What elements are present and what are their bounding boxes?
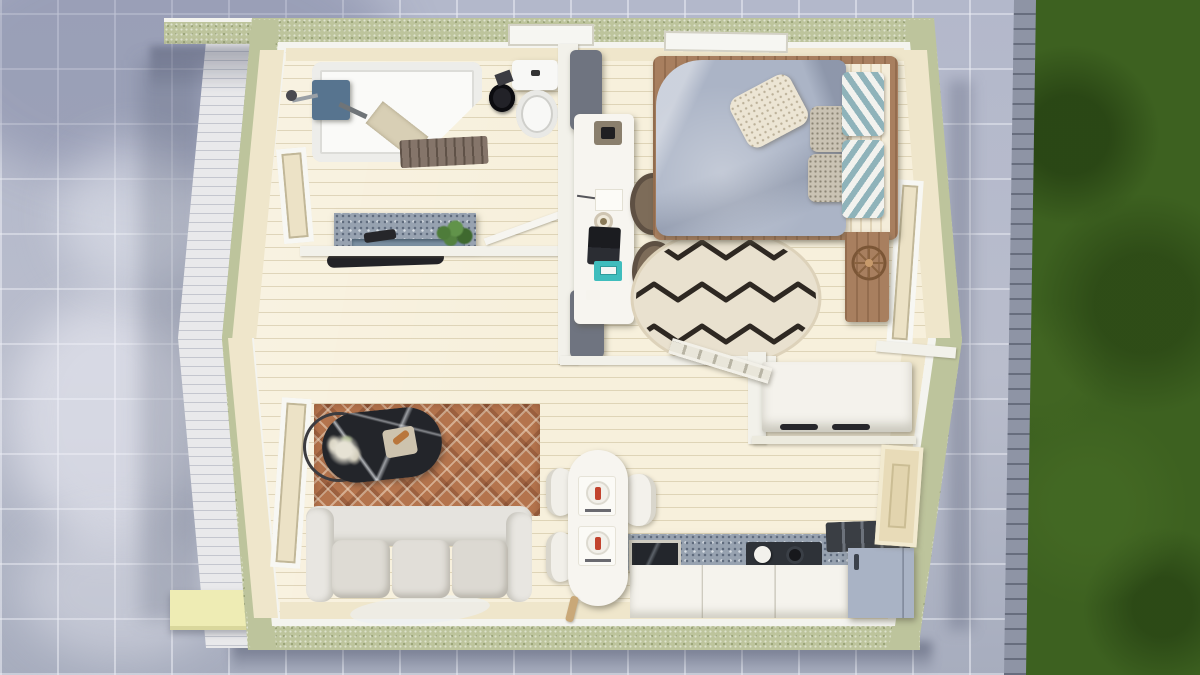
- notebook-label: [600, 266, 617, 275]
- laptop[interactable]: [587, 226, 621, 266]
- bathroom-half-wall: [300, 246, 582, 256]
- grass-lawn: [1014, 0, 1200, 675]
- cutlery-1: [585, 509, 611, 512]
- fridge-handle[interactable]: [854, 554, 859, 570]
- wardrobe-handle-1[interactable]: [780, 424, 818, 430]
- kettle: [754, 546, 771, 563]
- roof-overhang: [164, 18, 256, 44]
- bedroom-top-window: [664, 31, 788, 53]
- bedroom-zigzag-rug: [630, 228, 822, 368]
- rattan-wheel-decor: [850, 244, 888, 282]
- food-2: [595, 537, 601, 550]
- toilet-brush-set: [489, 84, 515, 112]
- wardrobe-handle-2[interactable]: [832, 424, 870, 430]
- sofa-cushion-2: [392, 540, 450, 598]
- place-setting-2: [578, 526, 616, 566]
- duckboard-mat: [399, 136, 488, 169]
- place-setting-1: [578, 476, 616, 516]
- sofa-cushion-3: [452, 540, 508, 598]
- cutlery-2: [585, 559, 611, 562]
- pampas-plant: [318, 424, 370, 476]
- entry-door[interactable]: [875, 445, 924, 548]
- sofa[interactable]: [306, 506, 532, 604]
- bathroom-top-window: [508, 24, 594, 46]
- sofa-arm-left: [306, 508, 334, 602]
- wall-bottom-studs: [248, 624, 920, 650]
- desk-small-item: [586, 290, 600, 300]
- phone: [601, 127, 615, 139]
- toilet-bowl: [516, 90, 558, 138]
- sofa-arm-right: [506, 512, 532, 602]
- sofa-cushion-1: [332, 540, 390, 598]
- desk-lamp-bulb: [600, 218, 607, 225]
- wardrobe-shelf: [752, 436, 916, 444]
- toilet-flush-button: [531, 70, 540, 76]
- vanity-plant: [430, 218, 476, 248]
- pillow-chevron-1: [842, 72, 884, 136]
- wardrobe[interactable]: [762, 362, 912, 432]
- paper-stack: [595, 189, 623, 211]
- shower-panel: [312, 80, 350, 120]
- kitchen-cabinets[interactable]: [630, 565, 848, 618]
- pillow-chevron-2: [842, 140, 884, 218]
- hob-burner: [786, 546, 804, 564]
- food-1: [595, 487, 601, 500]
- floor-plan-render: [0, 0, 1200, 675]
- shower-head-icon: [286, 90, 297, 101]
- door-panel: [888, 463, 910, 528]
